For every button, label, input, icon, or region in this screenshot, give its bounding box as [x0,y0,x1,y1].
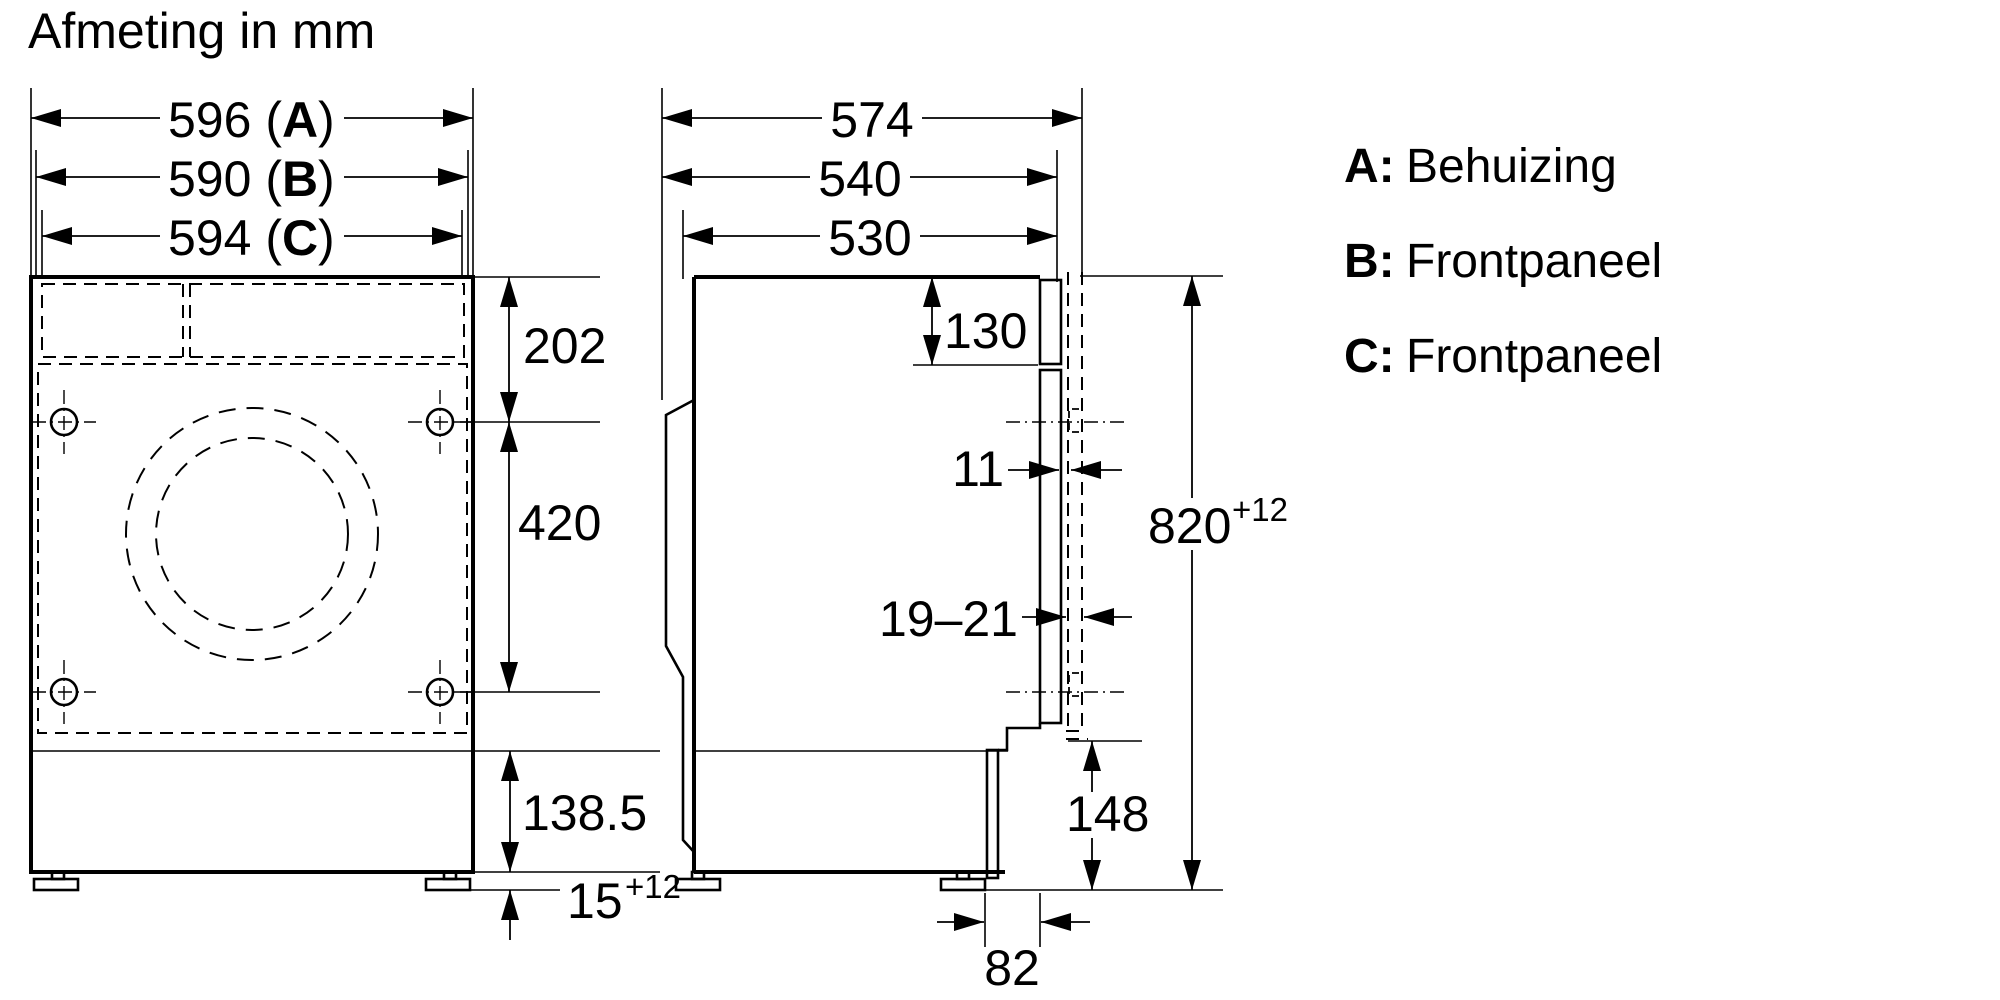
front-view-dimensions: 596 ( A ) 590 ( B ) 594 ( C ) 202 420 13… [31,88,681,940]
dim-label-540: 540 [818,151,901,207]
dimension-diagram: Afmeting in mm [0,0,2000,1000]
legend-label-b: Frontpaneel [1406,235,1662,288]
dim-label-574: 574 [830,92,913,148]
foot-base [941,879,985,890]
legend-key-b: B: [1344,235,1395,288]
dim-tolerance-15: +12 [625,868,681,905]
dim-label-202: 202 [523,318,606,374]
dim-label-11: 11 [952,441,1004,497]
dim-label-130: 130 [944,303,1027,359]
dim-letter-b: B [282,151,318,207]
hinge-bracket-upper [1069,409,1079,432]
side-view [666,272,1124,890]
side-left-foot [676,872,720,890]
dim-label-width-c: 594 ( [168,210,282,266]
legend: A: Behuizing B: Frontpaneel C: Frontpane… [1344,140,1662,383]
dim-label-138-5: 138.5 [522,785,647,841]
foot-base [676,879,720,890]
mounting-hole-bottom-left [32,660,96,724]
door-outer-circle [126,408,378,660]
side-view-dimensions: 574 540 530 130 11 19–21 820 +12 148 [662,88,1288,996]
dim-label-148: 148 [1066,786,1149,842]
dim-label-530: 530 [828,210,911,266]
front-view [31,277,473,890]
dim-tolerance-820: +12 [1232,491,1288,528]
dim-letter-c: C [282,210,318,266]
front-right-foot [426,872,470,890]
dim-label-82: 82 [984,940,1040,996]
mounting-hole-top-left [32,390,96,454]
door-panel-lower [1040,370,1061,723]
dim-suffix-a: ) [318,92,335,148]
dim-label-width-a: 596 ( [168,92,282,148]
door-panel-upper [1040,280,1061,364]
dim-suffix-c: ) [318,210,335,266]
drawing-canvas: Afmeting in mm [0,0,2000,1000]
side-front-step [998,723,1040,750]
dim-label-820: 820 [1148,498,1231,554]
side-rear-bulge-profile [666,400,694,852]
dim-label-15: 15 [567,873,623,929]
dim-label-width-b: 590 ( [168,151,282,207]
dim-suffix-b: ) [318,151,335,207]
front-left-foot [34,872,78,890]
front-inner-dashed-outline [38,364,467,733]
dim-label-19-21: 19–21 [879,591,1018,647]
page-title: Afmeting in mm [28,3,375,59]
foot-base [34,879,78,890]
side-plinth-panel [987,750,998,878]
front-cabinet-outline [31,277,473,872]
foot-base [426,879,470,890]
legend-label-a: Behuizing [1406,140,1617,193]
legend-key-a: A: [1344,140,1395,193]
legend-label-c: Frontpaneel [1406,330,1662,383]
drawer-dashed-outline [42,284,464,357]
door-inner-circle [156,438,348,630]
legend-key-c: C: [1344,330,1395,383]
dim-label-420: 420 [518,495,601,551]
dim-letter-a: A [282,92,318,148]
side-right-foot [941,872,985,890]
